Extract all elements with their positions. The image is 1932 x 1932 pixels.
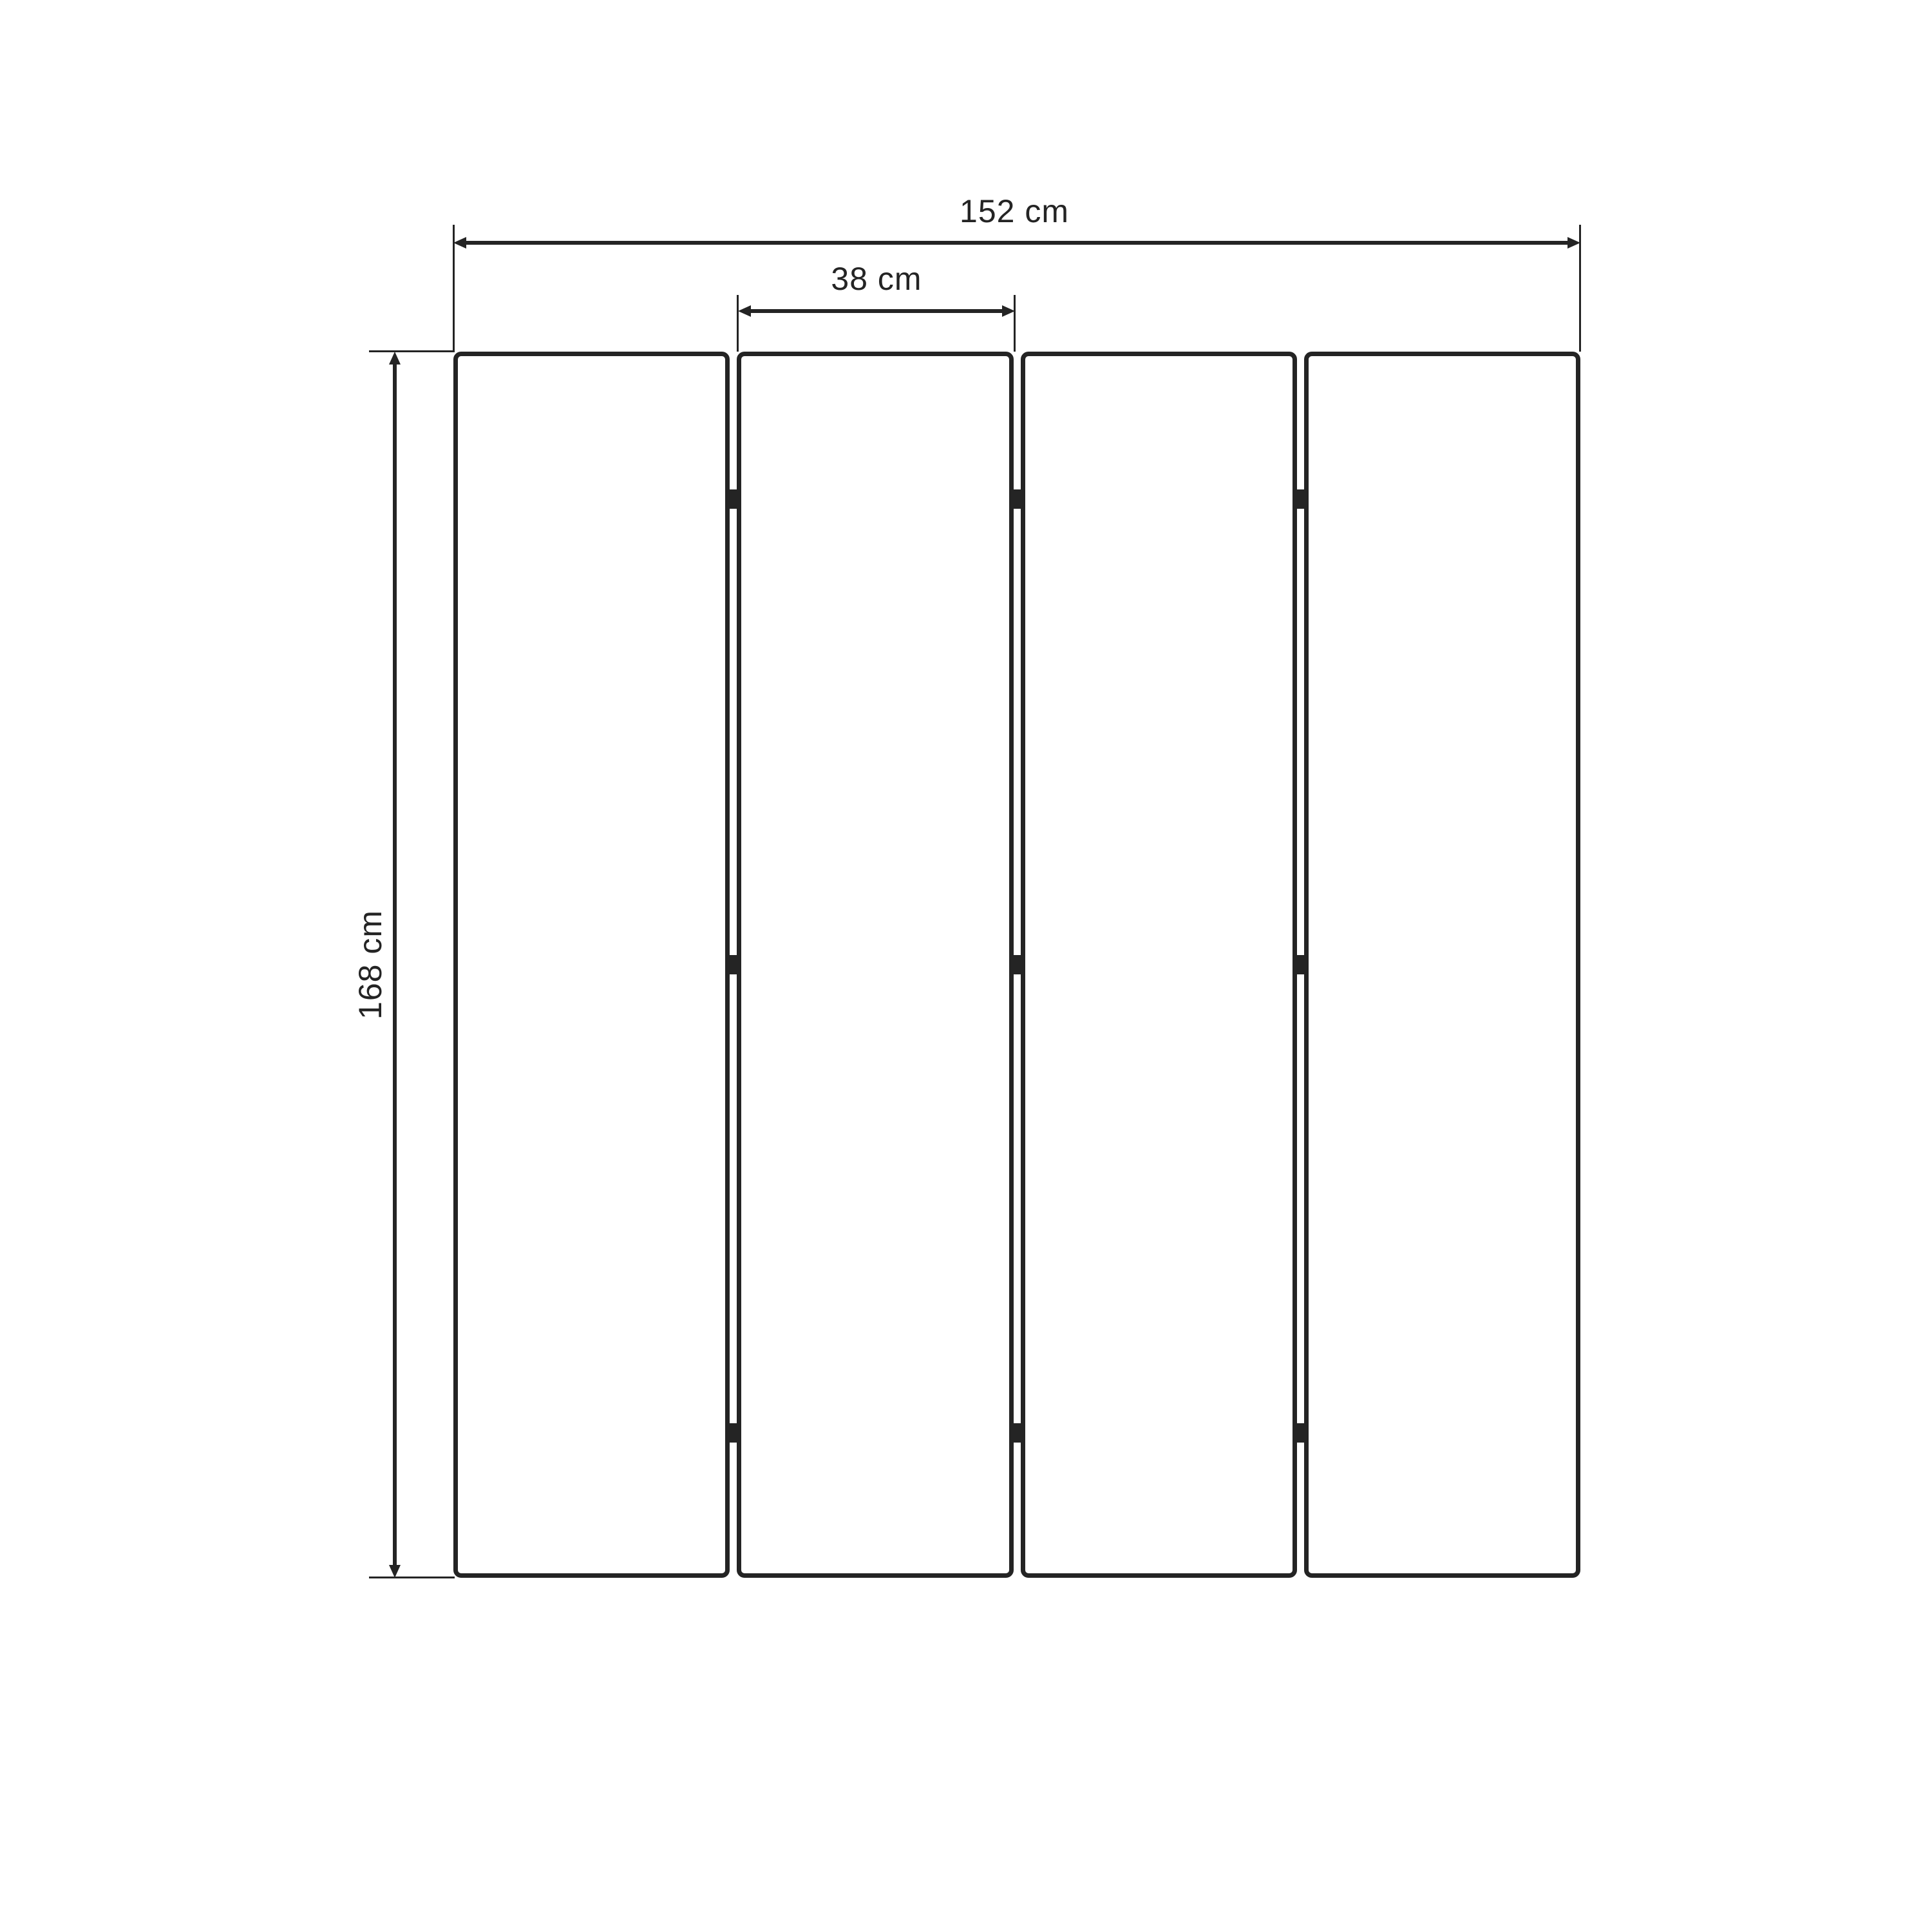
panel-row xyxy=(453,352,1580,1578)
panel-width-arrow-left-icon xyxy=(738,305,751,317)
panel-width-arrow-right-icon xyxy=(1002,305,1015,317)
total-width-dimension-line xyxy=(459,241,1575,245)
height-extension-line-top xyxy=(369,350,455,352)
panel-4 xyxy=(1304,352,1580,1578)
panel-width-extension-line-right xyxy=(1014,295,1016,352)
height-extension-line-bottom xyxy=(369,1577,455,1578)
panel-1 xyxy=(453,352,730,1578)
panel-width-label: 38 cm xyxy=(831,261,922,297)
height-arrow-down-icon xyxy=(389,1565,401,1578)
panel-width-extension-line-left xyxy=(737,295,739,352)
panel-width-dimension-line xyxy=(743,309,1010,313)
height-dimension-line xyxy=(393,357,397,1573)
panel-2 xyxy=(737,352,1013,1578)
height-arrow-up-icon xyxy=(389,352,401,365)
panel-3 xyxy=(1021,352,1297,1578)
total-width-label: 152 cm xyxy=(960,193,1069,229)
height-label: 168 cm xyxy=(352,910,388,1019)
dimension-diagram: 152 cm 38 cm 168 cm xyxy=(0,0,1932,1932)
total-width-arrow-left-icon xyxy=(453,237,466,249)
total-width-arrow-right-icon xyxy=(1567,237,1580,249)
